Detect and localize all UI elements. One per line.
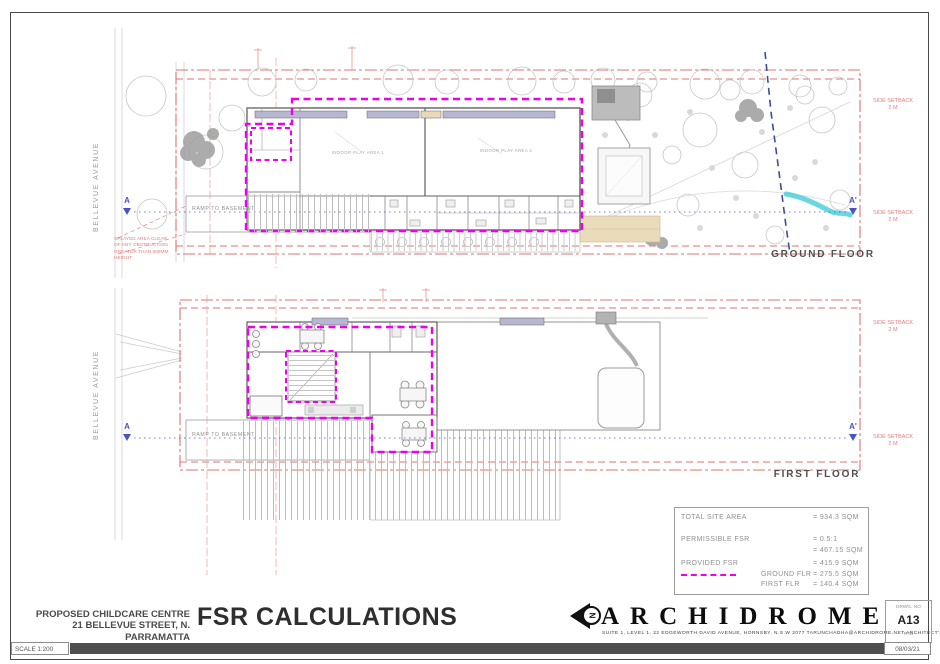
fsr-total-label: TOTAL SITE AREA bbox=[681, 514, 747, 521]
revision: R-00 bbox=[886, 631, 931, 636]
date-label: 08/03/21 bbox=[884, 642, 931, 655]
first-floor-label: FIRST FLOOR bbox=[752, 469, 882, 480]
drawing-sheet: BELLEVUE AVENUE BELLEVUE AVENUE INDOOR P… bbox=[0, 0, 940, 664]
firm-name: ARCHIDROME bbox=[601, 603, 890, 631]
ff-ramp-label: RAMP TO BASEMENT bbox=[192, 432, 255, 438]
section-marker-aprime-gf: A' bbox=[845, 196, 861, 205]
street-name-ff: BELLEVUE AVENUE bbox=[93, 350, 100, 440]
gf-ramp-label: RAMP TO BASEMENT bbox=[192, 206, 255, 212]
setback-label-ff-bottom: SIDE SETBACK2 M bbox=[864, 434, 922, 449]
room-label-play1: INDOOR PLAY AREA 1 bbox=[312, 150, 404, 155]
fsr-ground-value: = 275.5 SQM bbox=[813, 571, 859, 578]
roof-structure bbox=[598, 368, 644, 428]
fsr-permissible-label: PERMISSIBLE FSR bbox=[681, 536, 750, 543]
sheet-title: FSR CALCULATIONS bbox=[197, 603, 457, 632]
ground-floor-label: GROUND FLOOR bbox=[758, 249, 888, 260]
lift bbox=[250, 396, 282, 416]
project-title: PROPOSED CHILDCARE CENTRE 21 BELLEVUE ST… bbox=[14, 609, 190, 643]
section-marker-aprime-ff: A' bbox=[845, 422, 861, 431]
project-line2: 21 BELLEVUE STREET, N. PARRAMATTA bbox=[14, 620, 190, 643]
project-line1: PROPOSED CHILDCARE CENTRE bbox=[14, 609, 190, 620]
fsr-ground-label: GROUND FLR bbox=[761, 571, 811, 578]
room-label-play2: INDOOR PLAY AREA 2 bbox=[460, 148, 552, 153]
street-name-gf: BELLEVUE AVENUE bbox=[93, 142, 100, 232]
fsr-provided-legend-dash bbox=[681, 574, 736, 576]
setback-label-ff-top: SIDE SETBACK2 M bbox=[864, 320, 922, 335]
fsr-permissible-value: = 467.15 SQM bbox=[813, 547, 863, 554]
ff-stair-treads bbox=[289, 353, 334, 401]
setback-label-gf-bottom: SIDE SETBACK2 M bbox=[864, 210, 922, 225]
titlebar-strip bbox=[70, 643, 884, 654]
drawing-number-block: DRWG. NO A13 R-00 bbox=[885, 600, 932, 643]
fsr-total-value: = 934.3 SQM bbox=[813, 514, 859, 521]
setback-label-gf-top: SIDE SETBACK2 M bbox=[864, 98, 922, 113]
north-letter: N bbox=[587, 613, 596, 619]
drwg-no-label: DRWG. NO bbox=[886, 605, 931, 610]
fsr-permissible-ratio: = 0.5:1 bbox=[813, 536, 837, 543]
fsr-provided-value: = 415.9 SQM bbox=[813, 560, 859, 567]
splay-note: SPLAYED AREA CLEAR OF ANY OBSTRUCTION GR… bbox=[114, 237, 186, 263]
section-marker-a-gf: A bbox=[119, 196, 135, 205]
fsr-first-label: FIRST FLR bbox=[761, 581, 800, 588]
ff-building bbox=[123, 312, 857, 452]
archidrome-logo-icon: N bbox=[570, 602, 602, 630]
fsr-table: TOTAL SITE AREA = 934.3 SQM PERMISSIBLE … bbox=[674, 507, 869, 595]
scale-label: SCALE 1:200 bbox=[11, 642, 69, 655]
fsr-first-value: = 140.4 SQM bbox=[813, 581, 859, 588]
section-marker-a-ff: A bbox=[119, 422, 135, 431]
fsr-provided-label: PROVIDED FSR bbox=[681, 560, 738, 567]
drwg-no: A13 bbox=[886, 613, 931, 627]
